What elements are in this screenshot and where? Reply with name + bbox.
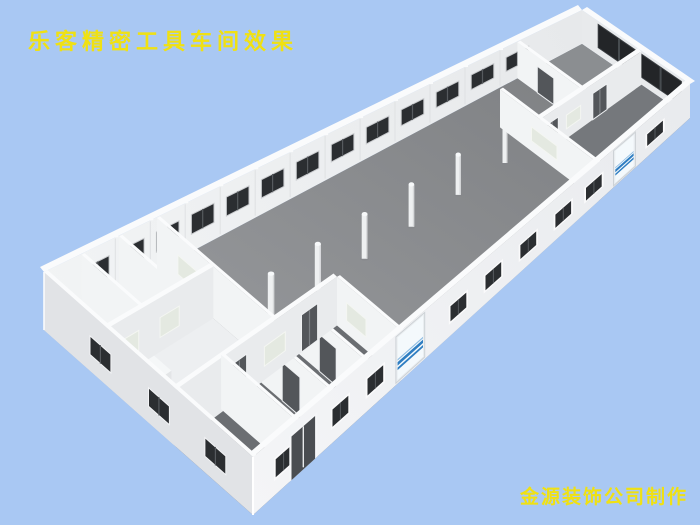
column-top [409,182,415,186]
workshop-3d-rendering [0,0,700,525]
credit-text: 金源装饰公司制作 [520,482,688,509]
column-top [315,242,321,246]
column-top [268,271,274,275]
column-top [456,153,461,157]
column-top [362,212,368,216]
workshop-rendering-canvas: 乐客精密工具车间效果 金源装饰公司制作 [0,0,700,525]
title-text: 乐客精密工具车间效果 [28,24,298,56]
